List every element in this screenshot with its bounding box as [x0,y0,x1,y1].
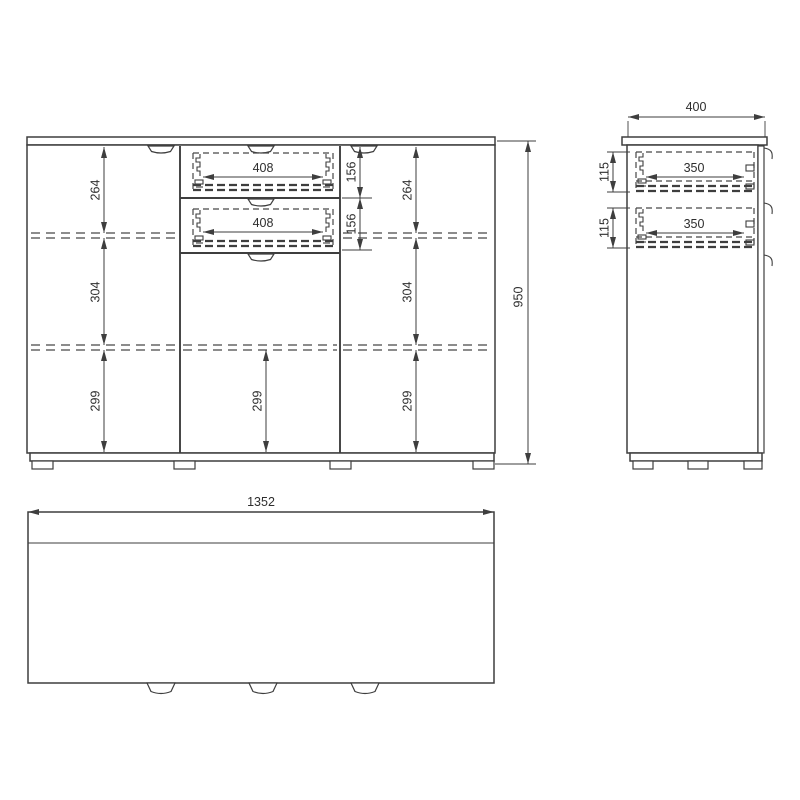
handle-cutout-icon [148,146,174,153]
foot [688,461,708,469]
dimension-label: 264 [88,180,102,201]
handle-cutout-icon [249,683,277,694]
front-view: 408 408 264 304 299 264 3 [27,137,536,469]
dimension-label: 1352 [247,495,275,509]
top-panel [27,137,495,145]
dimension-overall-height: 950 [495,141,536,464]
dimension-chain-left: 264 304 299 [88,147,104,452]
foot [174,461,195,469]
foot [744,461,762,469]
foot [473,461,494,469]
dimension-label: 156 [344,214,358,235]
foot [633,461,653,469]
handle-cutout-icon [351,683,379,694]
top-view-outline [28,512,494,683]
side-view: 400 350 [597,100,772,469]
handle-cutout-icon [248,254,274,261]
plinth-side [630,453,762,461]
dimension-label: 115 [597,162,611,182]
hinge-mark-icon [764,255,772,266]
hinge-mark-icon [764,203,772,214]
handle-cutout-icon [248,199,274,206]
dimension-label: 350 [684,161,705,175]
cabinet-dimension-drawing: 408 408 264 304 299 264 3 [0,0,800,800]
dimension-label: 156 [344,162,358,183]
handle-cutout-icon [248,146,274,153]
dimension-label: 304 [400,282,414,303]
foot [330,461,351,469]
top-view: 1352 [28,495,494,694]
plinth [30,453,494,461]
dimension-label: 264 [400,180,414,201]
dimension-label: 350 [684,217,705,231]
dimension-label: 950 [511,287,525,308]
dimension-chain-right: 264 304 299 [400,147,416,452]
dimension-label: 408 [253,161,274,175]
dimension-label: 115 [597,218,611,238]
dimension-label: 299 [88,391,102,412]
hinge-mark-icon [764,148,772,159]
top-panel-side [622,137,767,145]
handle-cutout-icon [351,146,377,153]
dimension-drawer-heights: 115 115 [597,152,630,248]
technical-drawing-page: 408 408 264 304 299 264 3 [0,0,800,800]
dimension-label: 400 [686,100,707,114]
dimension-label: 304 [88,282,102,303]
dimension-label: 299 [400,391,414,412]
front-panel-edge [758,146,764,453]
dimension-label: 299 [250,391,264,412]
handle-cutout-icon [147,683,175,694]
dimension-label: 408 [253,216,274,230]
foot [32,461,53,469]
dimension-overall-width: 1352 [28,495,494,512]
